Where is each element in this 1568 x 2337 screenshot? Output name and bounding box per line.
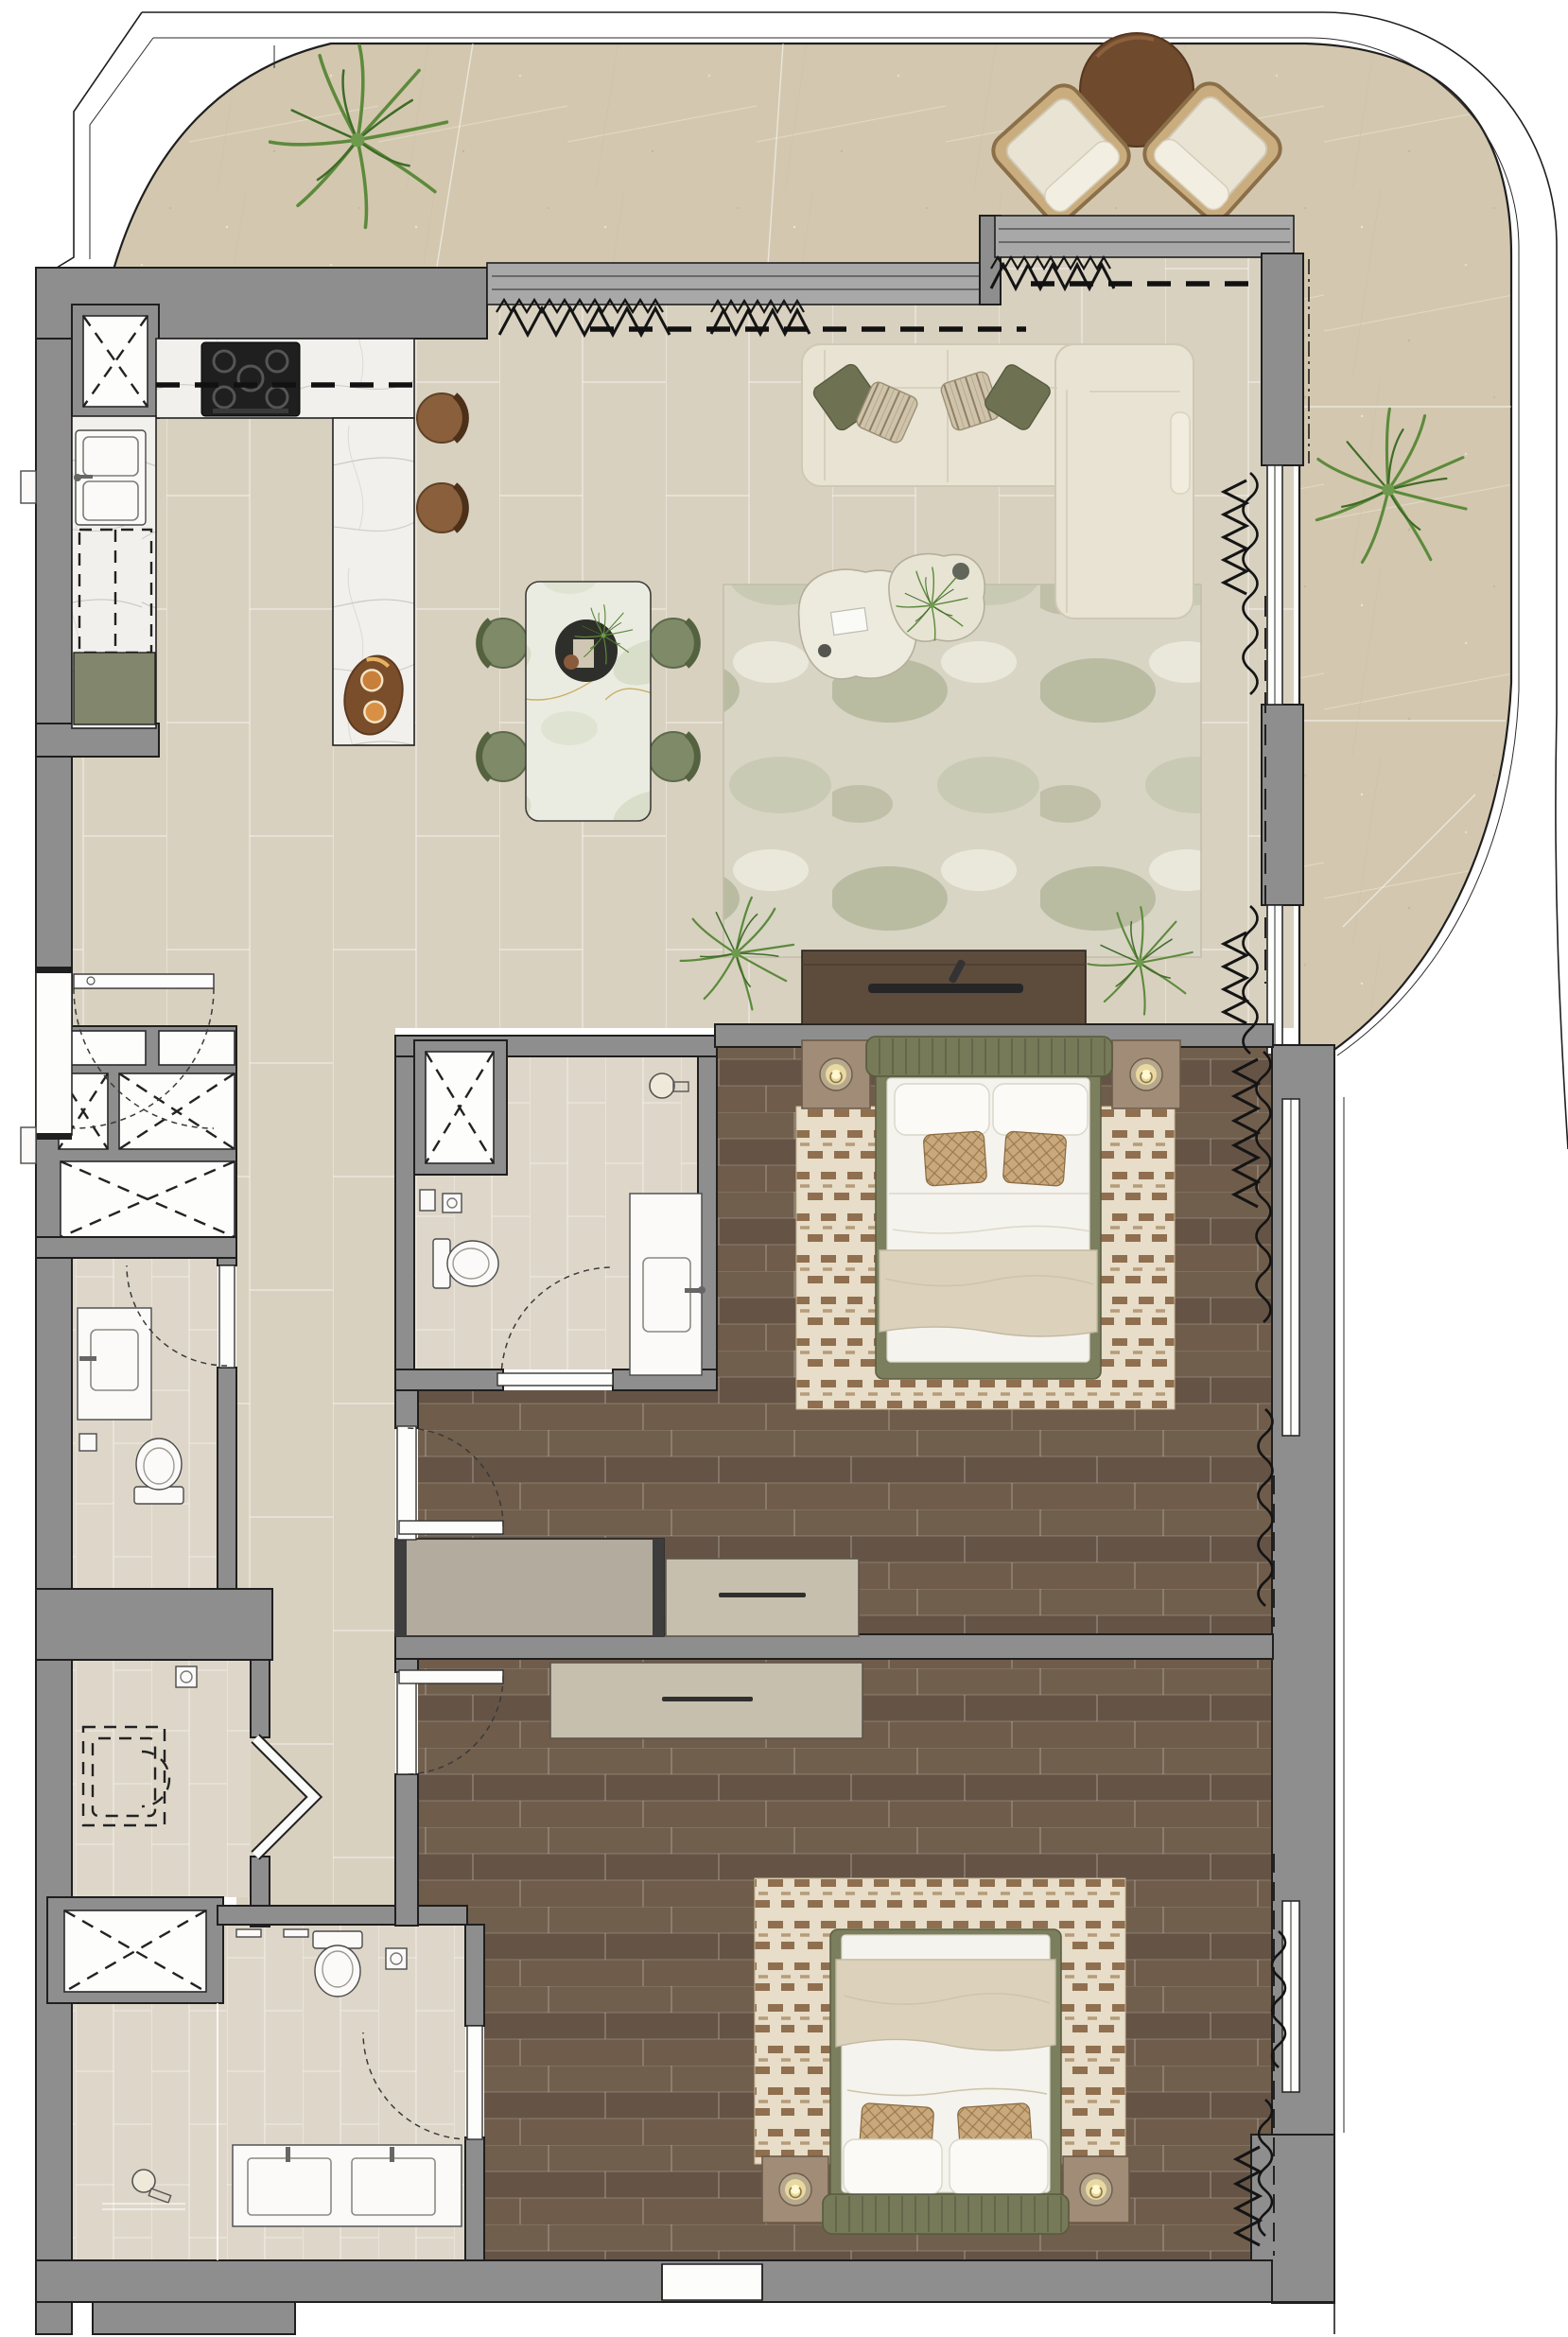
gas-hob [201,342,300,416]
bedroom-2-door-opening [397,1672,416,1774]
toilet [134,1439,183,1504]
headboard [823,2194,1069,2234]
vanity-sink [78,1308,151,1420]
olive-base-cabinet [74,653,155,724]
laundry-floor [72,1660,251,1897]
dining-table [526,582,651,821]
wall-between-bedrooms [395,1634,1273,1659]
sliding-glass-door-a [487,263,984,305]
double-bed [823,1929,1069,2234]
wall-bottom [36,2260,1272,2302]
tv-console [802,950,1086,1024]
wardrobe [395,1539,664,1636]
corridor-floor [236,1028,395,1906]
floor-plan-page [0,0,1568,2337]
headboard [866,1037,1112,1076]
double-sink [74,430,146,525]
table-lamp [820,1058,852,1090]
double-bed [866,1037,1112,1379]
vanity-sink [630,1194,706,1375]
sliding-glass-door-b [995,216,1294,257]
toilet [433,1239,498,1288]
table-lamp [779,2173,811,2206]
bathroom-2-door [467,2026,482,2139]
bedroom-1-door [399,1521,503,1534]
table-lamp [1130,1058,1162,1090]
soundbar [868,984,1023,993]
double-vanity [233,2145,462,2226]
bedroom-2-door [399,1670,503,1683]
ceiling-light [176,1666,197,1687]
wall-right-bedrooms [1272,1045,1334,2303]
floor-plan-drawing [0,0,1568,2337]
living-area-rug [723,584,1201,957]
wall-left [36,268,72,2334]
table-lamp [1080,2173,1112,2206]
dresser-bedroom-2 [550,1663,862,1738]
dresser-bedroom-1 [666,1559,859,1636]
bar-stool-1 [417,393,466,443]
wall-right-a [1262,253,1303,465]
powder-door [219,1265,235,1368]
wall-right-b [1262,705,1303,905]
bar-stool-2 [417,483,466,532]
toilet [313,1931,362,1997]
